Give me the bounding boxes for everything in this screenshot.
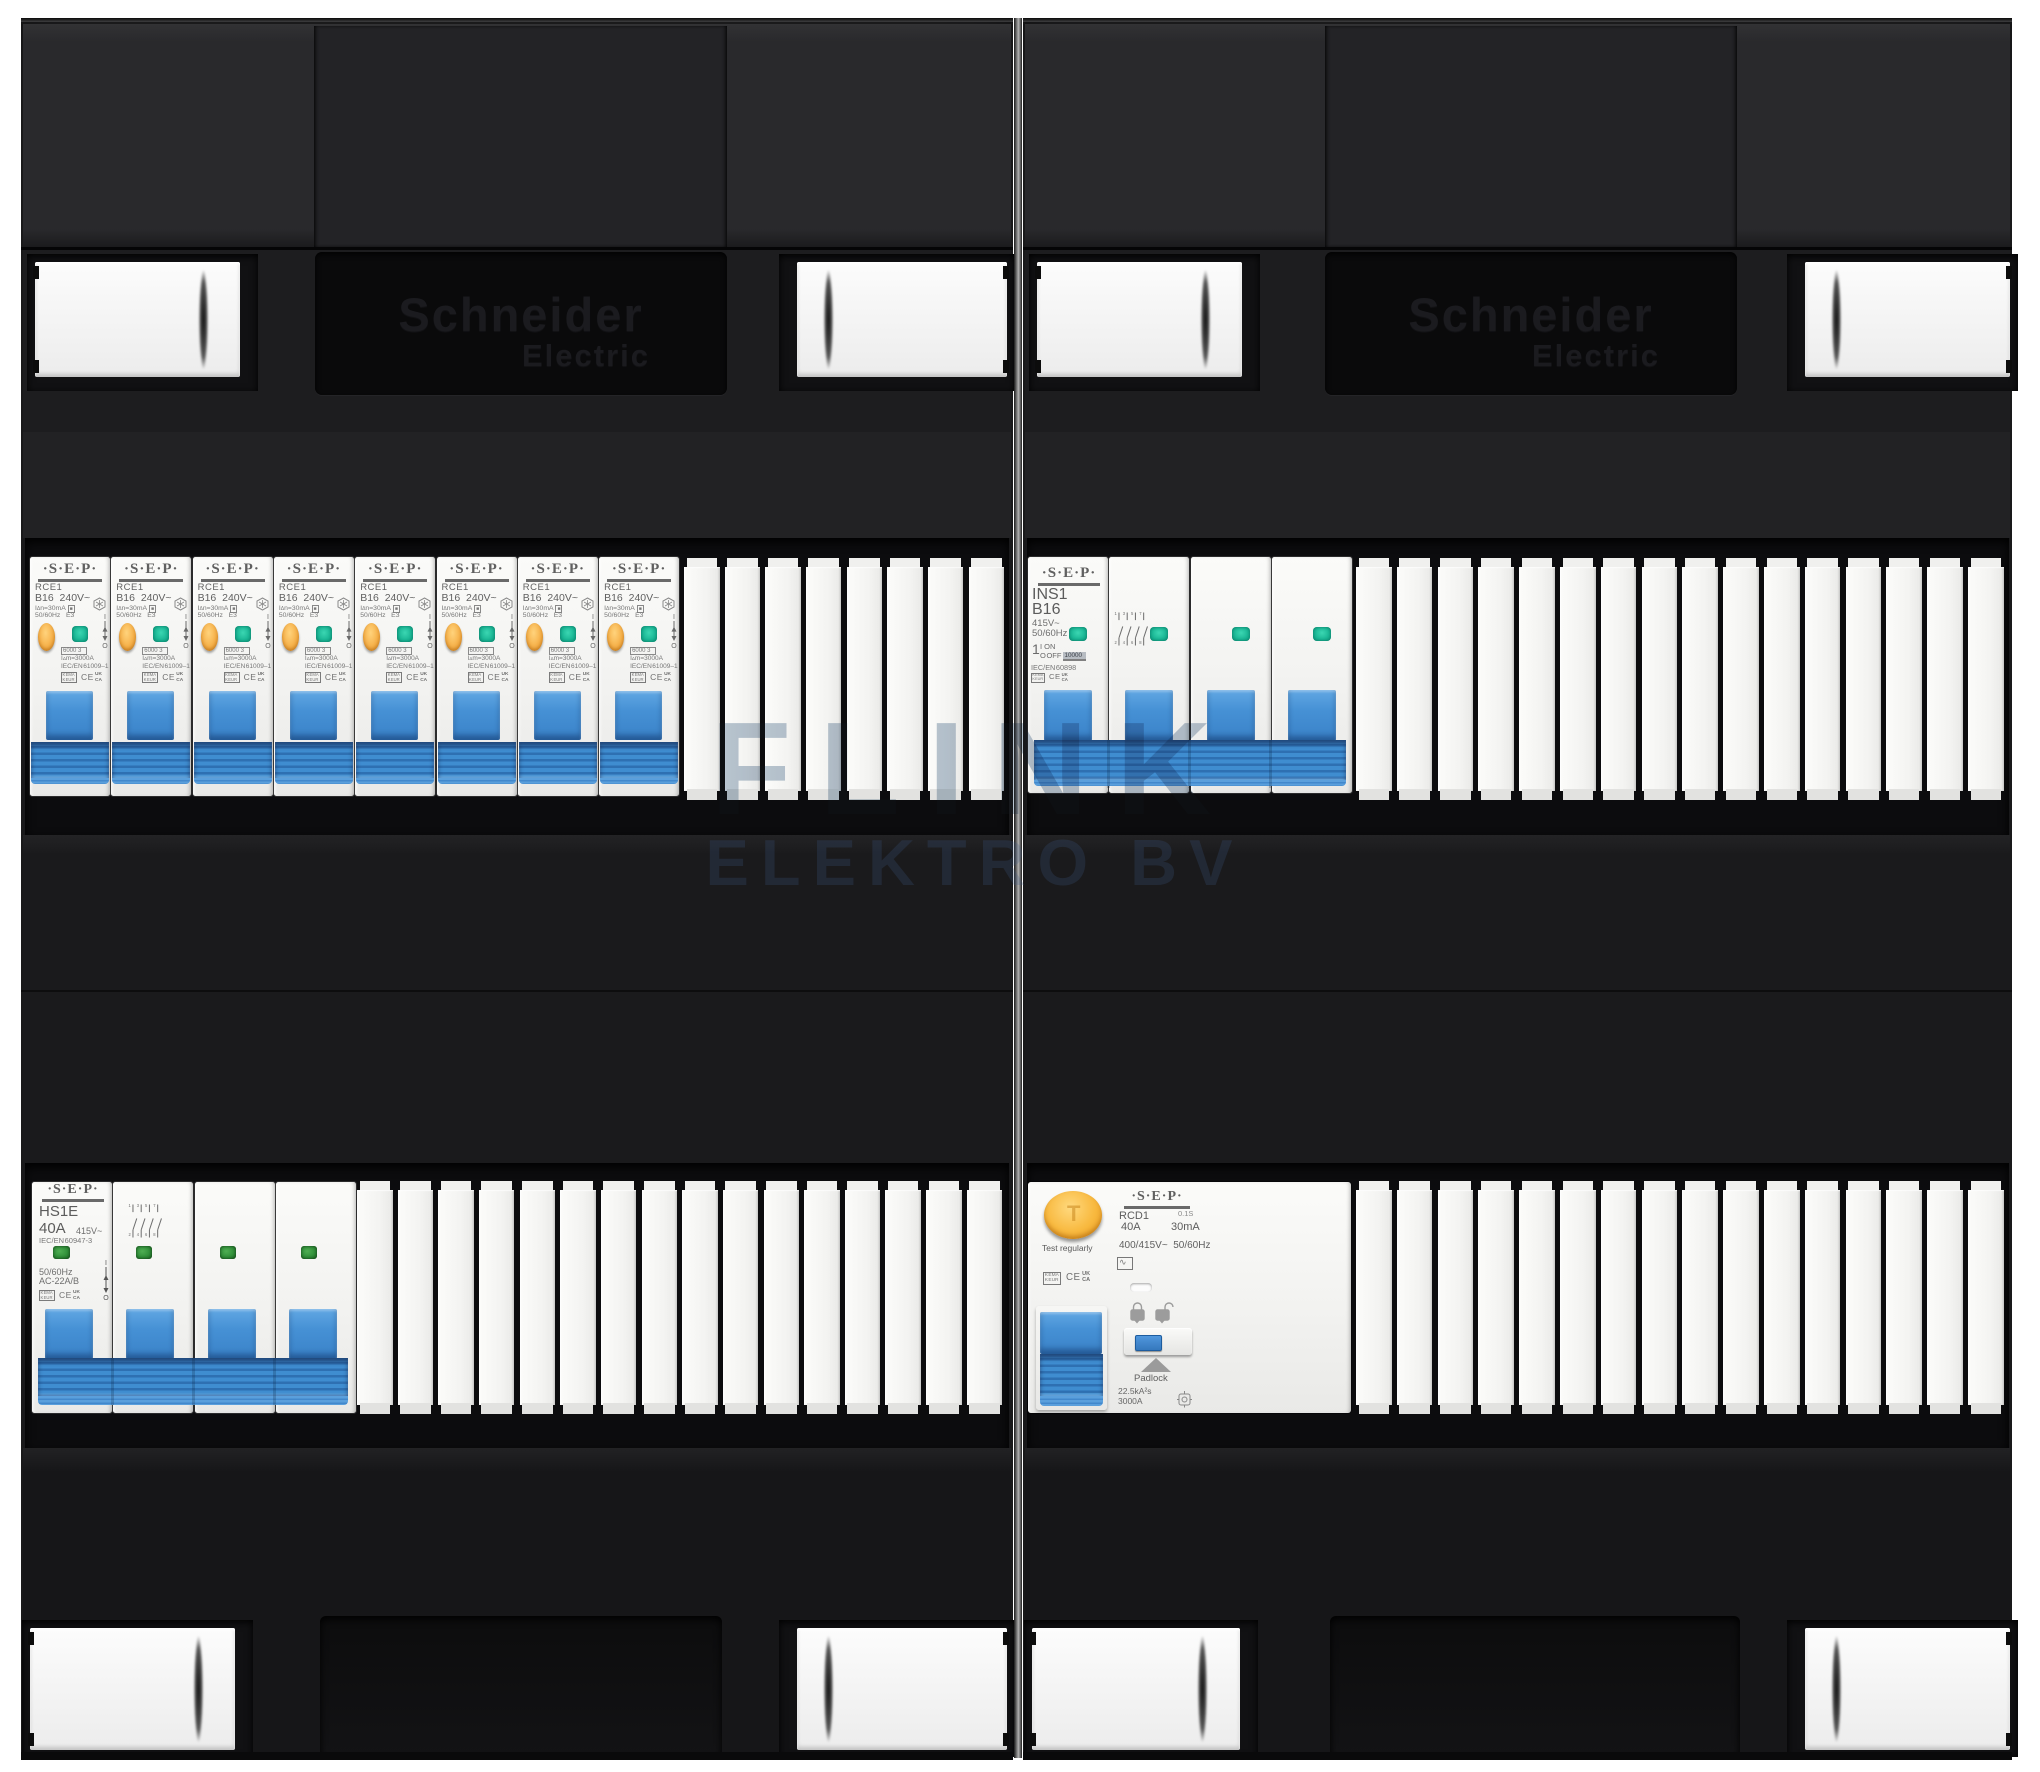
svg-text:1: 1 [129,1203,132,1208]
svg-text:O: O [102,643,108,649]
svg-text:O: O [509,643,515,649]
svg-text:O: O [590,643,596,649]
svg-text:8: 8 [1140,640,1143,645]
svg-text:I: I [104,614,106,621]
svg-text:2: 2 [129,1232,132,1237]
svg-text:3: 3 [137,1203,140,1208]
svg-text:O: O [427,643,433,649]
svg-text:I: I [673,614,675,621]
svg-text:2: 2 [1115,640,1118,645]
svg-text:I: I [267,614,269,621]
svg-text:4: 4 [137,1232,140,1237]
svg-text:O: O [346,643,352,649]
svg-text:6: 6 [145,1232,148,1237]
svg-text:7: 7 [154,1203,157,1208]
svg-text:7: 7 [1140,611,1143,616]
svg-text:5: 5 [1131,611,1134,616]
svg-text:I: I [511,614,513,621]
svg-text:8: 8 [154,1232,157,1237]
svg-text:3: 3 [1123,611,1126,616]
svg-text:O: O [103,1295,109,1301]
svg-text:1: 1 [1115,611,1118,616]
svg-text:I: I [429,614,431,621]
svg-text:I: I [348,614,350,621]
svg-text:O: O [671,643,677,649]
svg-text:4: 4 [1123,640,1126,645]
svg-text:I: I [185,614,187,621]
svg-text:I: I [105,1260,107,1267]
svg-text:O: O [265,643,271,649]
svg-text:6: 6 [1131,640,1134,645]
svg-text:5: 5 [145,1203,148,1208]
svg-text:I: I [592,614,594,621]
svg-text:O: O [184,643,190,649]
